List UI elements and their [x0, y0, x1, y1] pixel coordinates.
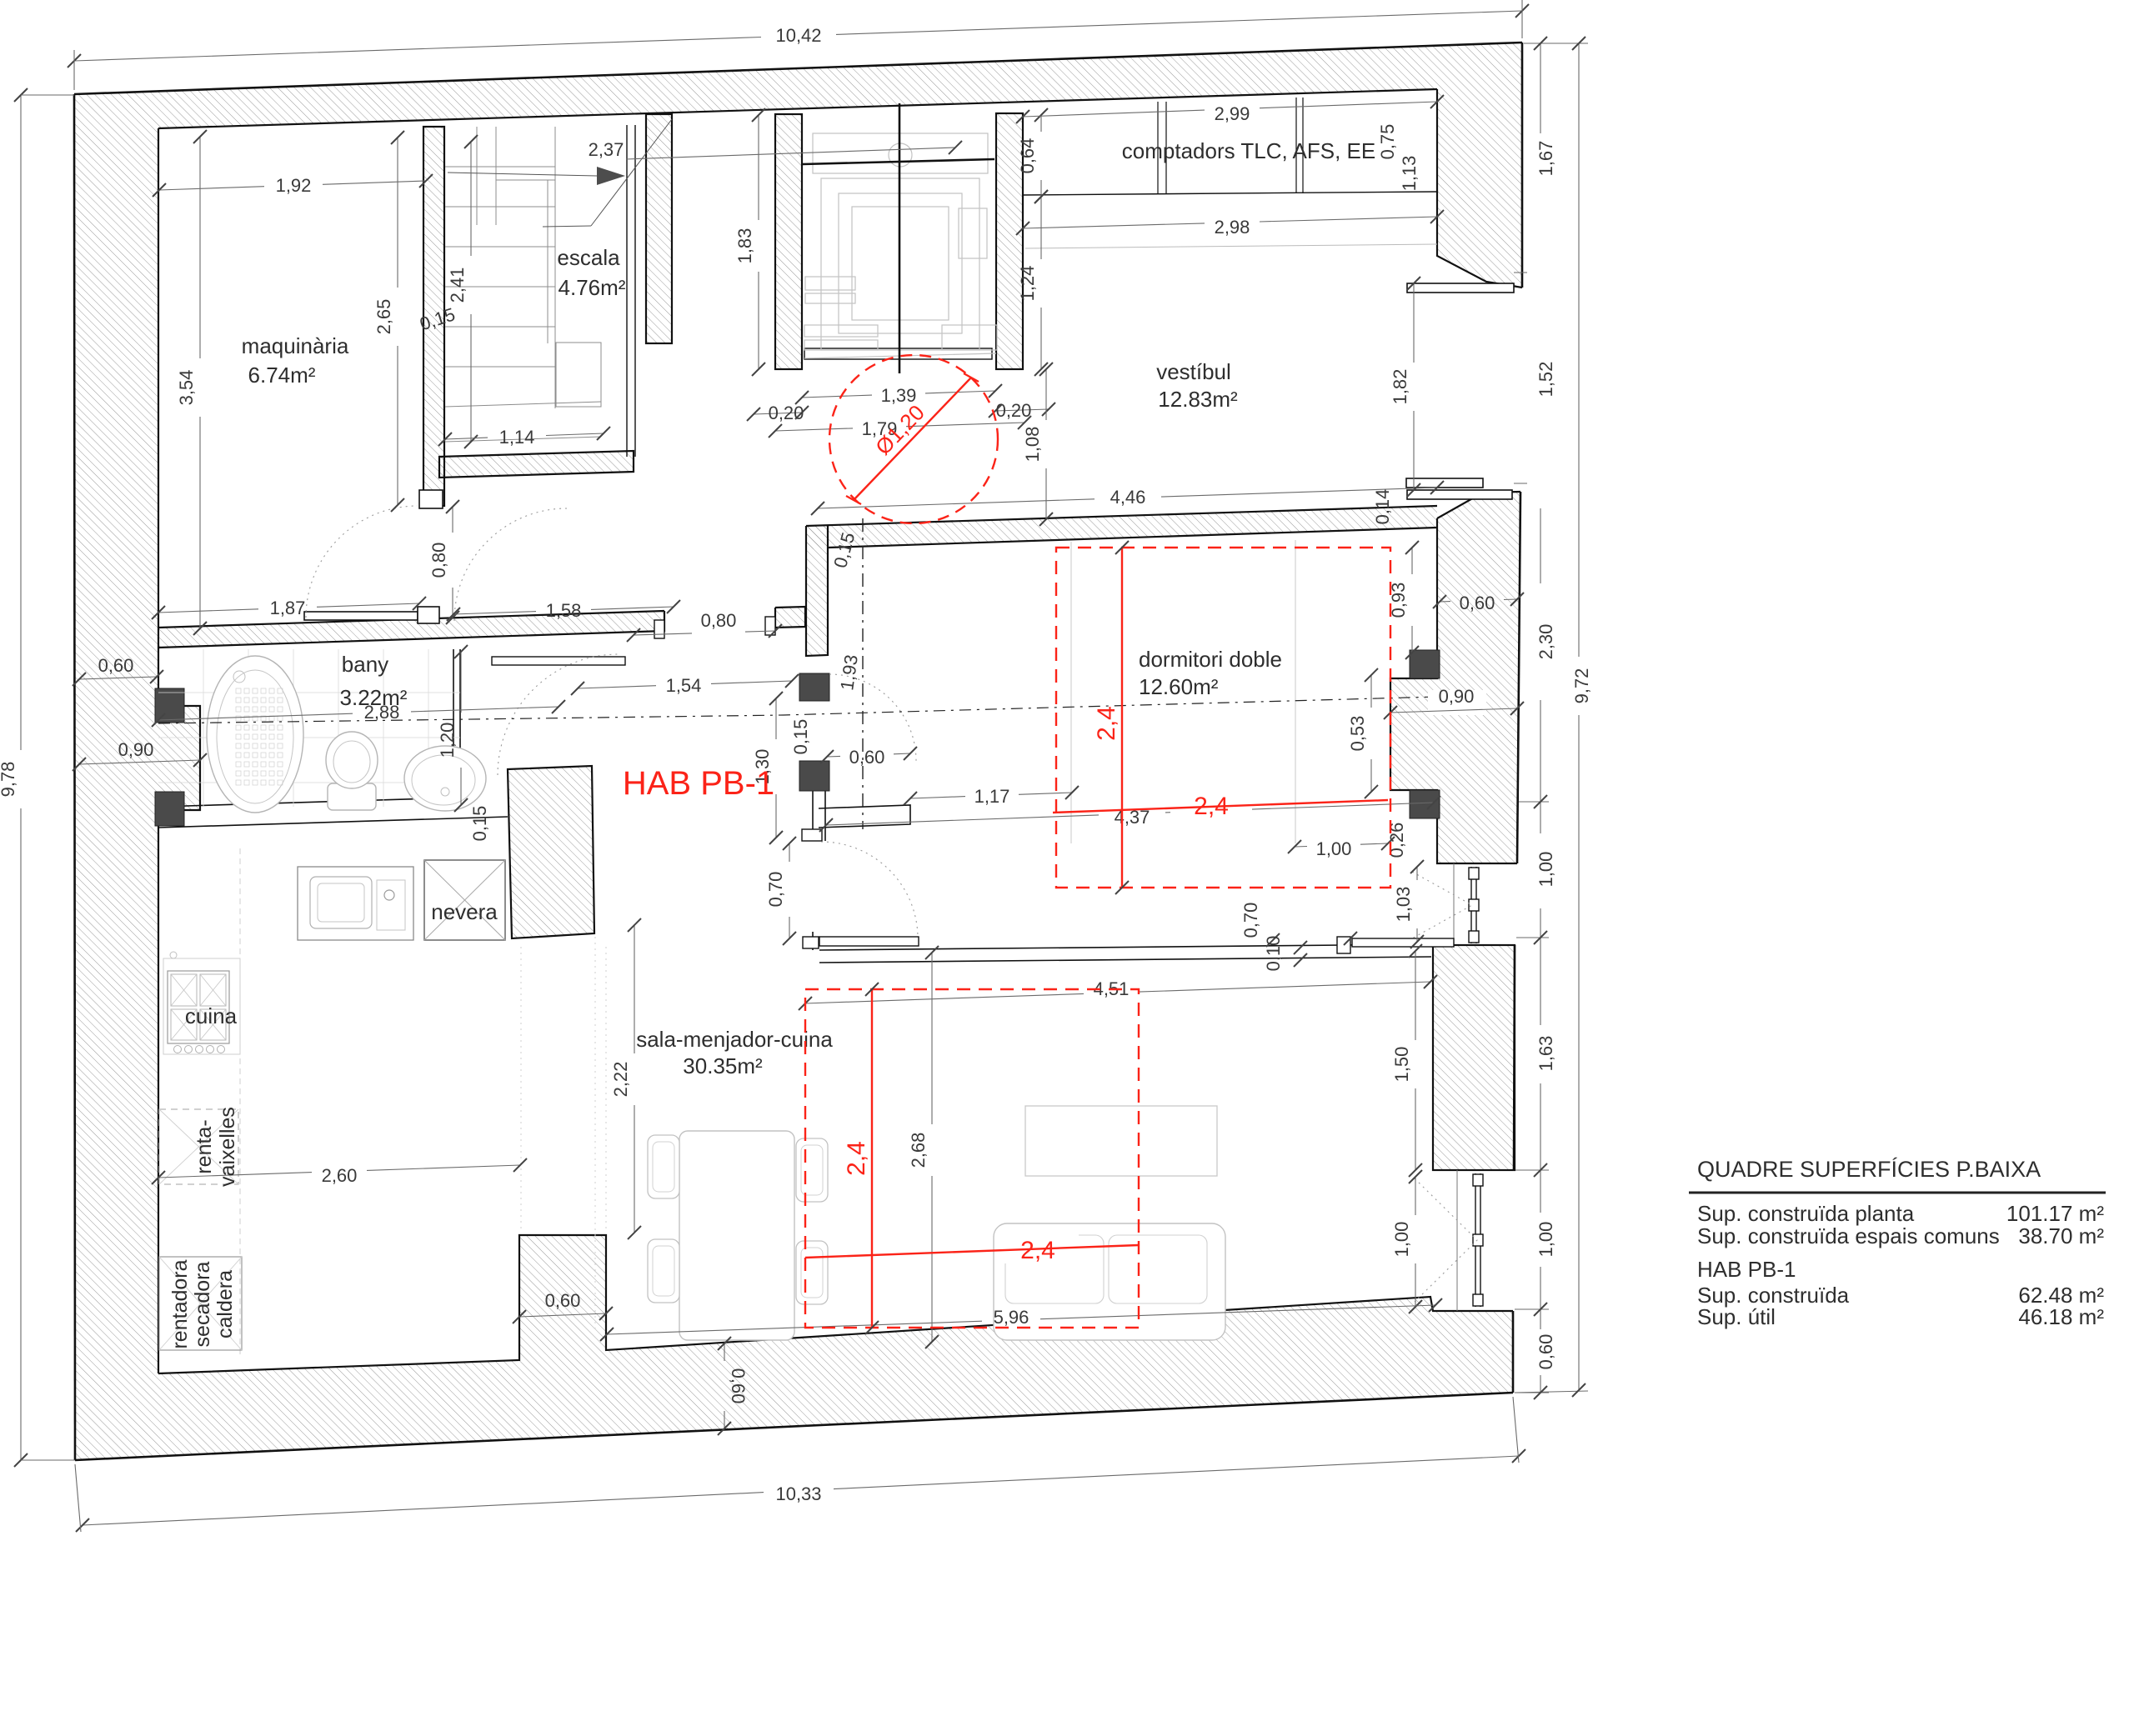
svg-text:1,20: 1,20 [437, 723, 458, 758]
svg-text:secadora: secadora [191, 1261, 214, 1347]
svg-text:1,54: 1,54 [666, 675, 702, 696]
svg-text:comptadors TLC, AFS, EE: comptadors TLC, AFS, EE [1122, 138, 1375, 163]
svg-text:cuina: cuina [185, 1003, 238, 1028]
svg-text:0,64: 0,64 [1017, 138, 1038, 174]
svg-text:0,60: 0,60 [1535, 1334, 1556, 1370]
svg-text:dormitori doble: dormitori doble [1139, 647, 1282, 672]
svg-text:1,14: 1,14 [499, 427, 535, 448]
svg-text:0,20: 0,20 [769, 403, 804, 423]
svg-text:2,4: 2,4 [843, 1141, 870, 1176]
svg-text:2,41: 2,41 [447, 268, 468, 303]
svg-text:0,90: 0,90 [1439, 686, 1475, 707]
svg-text:1,08: 1,08 [1022, 427, 1043, 463]
svg-text:1,03: 1,03 [1393, 887, 1414, 923]
svg-text:10,42: 10,42 [775, 25, 821, 46]
svg-text:0,70: 0,70 [1240, 903, 1261, 938]
svg-text:0,10: 0,10 [1263, 936, 1284, 972]
svg-text:rentadora: rentadora [168, 1259, 192, 1348]
svg-text:1,83: 1,83 [734, 228, 755, 264]
svg-text:bany: bany [342, 652, 388, 677]
svg-text:2,30: 2,30 [1535, 624, 1556, 660]
svg-text:4,46: 4,46 [1110, 487, 1146, 508]
svg-text:9,72: 9,72 [1571, 668, 1592, 704]
svg-text:2,98: 2,98 [1215, 217, 1250, 238]
svg-text:2,68: 2,68 [908, 1133, 929, 1168]
svg-text:2,4: 2,4 [1093, 706, 1120, 741]
svg-text:2,60: 2,60 [322, 1165, 358, 1186]
svg-text:1,13: 1,13 [1399, 156, 1420, 192]
svg-text:0,60: 0,60 [728, 1368, 749, 1404]
svg-text:0,90: 0,90 [118, 739, 154, 760]
svg-text:4.76m²: 4.76m² [559, 275, 626, 300]
svg-text:vaixelles: vaixelles [216, 1107, 239, 1187]
svg-text:vestíbul: vestíbul [1156, 359, 1231, 384]
svg-text:0,60: 0,60 [545, 1290, 581, 1311]
svg-text:2,4: 2,4 [1194, 793, 1229, 820]
svg-text:1,17: 1,17 [974, 786, 1010, 807]
svg-text:2,22: 2,22 [610, 1062, 631, 1098]
svg-text:1,00: 1,00 [1391, 1222, 1412, 1258]
svg-text:101.17 m²: 101.17 m² [2006, 1201, 2104, 1226]
svg-text:12.83m²: 12.83m² [1158, 387, 1238, 412]
svg-text:0,20: 0,20 [996, 400, 1032, 421]
svg-text:1,00: 1,00 [1316, 838, 1352, 859]
svg-text:0,14: 0,14 [1372, 489, 1393, 525]
svg-text:1,24: 1,24 [1017, 266, 1038, 302]
svg-text:Sup. útil: Sup. útil [1697, 1304, 1776, 1329]
svg-text:1,52: 1,52 [1535, 362, 1556, 398]
svg-text:0,60: 0,60 [849, 747, 885, 768]
svg-text:0,60: 0,60 [1460, 593, 1495, 613]
svg-text:1,58: 1,58 [546, 600, 582, 621]
svg-text:2,65: 2,65 [373, 299, 394, 335]
svg-text:HAB PB-1: HAB PB-1 [1697, 1257, 1796, 1282]
svg-text:30.35m²: 30.35m² [683, 1053, 763, 1078]
svg-text:0,26: 0,26 [1386, 823, 1407, 858]
svg-text:0,80: 0,80 [701, 610, 737, 631]
svg-text:1,00: 1,00 [1535, 1222, 1556, 1258]
svg-text:1,00: 1,00 [1535, 852, 1556, 888]
svg-text:2,99: 2,99 [1215, 103, 1250, 124]
svg-text:1,92: 1,92 [276, 175, 312, 196]
svg-text:Sup. construïda espais comuns: Sup. construïda espais comuns [1697, 1223, 2000, 1248]
svg-text:2,4: 2,4 [1020, 1237, 1055, 1264]
svg-text:5,96: 5,96 [994, 1307, 1029, 1328]
svg-text:3.22m²: 3.22m² [340, 685, 408, 710]
svg-text:0,75: 0,75 [1377, 124, 1398, 160]
svg-text:1,87: 1,87 [270, 598, 306, 618]
svg-text:0,80: 0,80 [428, 543, 449, 578]
svg-text:0,60: 0,60 [98, 655, 134, 676]
svg-text:46.18 m²: 46.18 m² [2018, 1304, 2104, 1329]
svg-text:sala-menjador-cuina: sala-menjador-cuina [636, 1027, 833, 1052]
svg-text:0,15: 0,15 [790, 719, 811, 755]
svg-text:0,53: 0,53 [1347, 716, 1368, 752]
svg-text:1,50: 1,50 [1391, 1047, 1412, 1083]
svg-text:maquinària: maquinària [242, 333, 349, 358]
svg-text:0,70: 0,70 [765, 872, 786, 908]
svg-text:1,67: 1,67 [1535, 141, 1556, 177]
svg-text:38.70 m²: 38.70 m² [2018, 1223, 2104, 1248]
svg-text:1,82: 1,82 [1390, 369, 1410, 405]
svg-text:QUADRE SUPERFÍCIES P.BAIXA: QUADRE SUPERFÍCIES P.BAIXA [1697, 1157, 2041, 1182]
svg-text:2,37: 2,37 [589, 139, 624, 160]
svg-text:escala: escala [557, 245, 620, 270]
svg-text:10,33: 10,33 [775, 1483, 821, 1504]
svg-text:HAB PB-1: HAB PB-1 [623, 765, 774, 802]
svg-text:1,63: 1,63 [1535, 1036, 1556, 1072]
svg-text:caldera: caldera [213, 1270, 237, 1338]
svg-text:nevera: nevera [431, 899, 498, 924]
svg-text:12.60m²: 12.60m² [1139, 674, 1219, 699]
svg-text:6.74m²: 6.74m² [248, 363, 316, 388]
svg-text:renta-: renta- [193, 1119, 216, 1173]
svg-text:0,15: 0,15 [469, 806, 490, 842]
svg-text:3,54: 3,54 [176, 370, 197, 406]
svg-text:Sup. construïda planta: Sup. construïda planta [1697, 1201, 1915, 1226]
svg-text:9,78: 9,78 [0, 762, 18, 798]
